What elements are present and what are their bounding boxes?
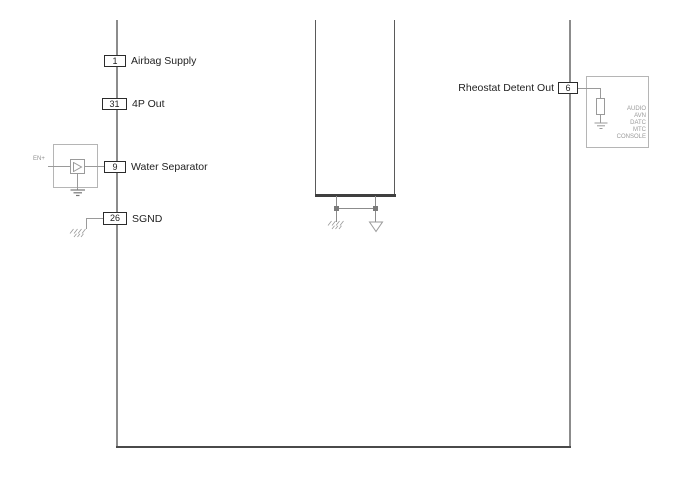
signal-ground-icon bbox=[327, 220, 347, 230]
module-name-list: AUDIO AVN DATC MTC CONSOLE bbox=[600, 106, 646, 141]
amplifier-ground-wire bbox=[77, 174, 78, 190]
module-input-wire bbox=[578, 88, 601, 89]
module-name-datc: DATC bbox=[600, 120, 646, 127]
sgnd-signal-ground-icon bbox=[69, 228, 89, 238]
junction-dot-left bbox=[334, 206, 339, 211]
connector-right-edge bbox=[394, 20, 395, 195]
amplifier-input-label: EN+ bbox=[33, 156, 45, 163]
connector-bottom-edge bbox=[315, 194, 396, 197]
pin-box-31: 31 bbox=[102, 98, 127, 110]
earth-ground-icon bbox=[70, 189, 86, 197]
pin-box-1: 1 bbox=[104, 55, 126, 67]
left-harness-wire bbox=[116, 20, 118, 447]
module-name-avn: AVN bbox=[600, 113, 646, 120]
connector-junction-wire bbox=[336, 208, 376, 209]
junction-dot-right bbox=[373, 206, 378, 211]
pin-label-airbag-supply: Airbag Supply bbox=[131, 55, 196, 67]
amplifier-triangle-icon bbox=[73, 162, 83, 172]
wiring-diagram-canvas: 1 Airbag Supply 31 4P Out EN+ 9 Water Se… bbox=[0, 0, 700, 477]
connector-left-edge bbox=[315, 20, 316, 195]
pin-label-4p-out: 4P Out bbox=[132, 98, 165, 110]
module-name-console: CONSOLE bbox=[600, 134, 646, 141]
pin-label-rheostat-detent-out: Rheostat Detent Out bbox=[430, 82, 554, 94]
resistor-top-wire bbox=[600, 88, 601, 98]
module-name-mtc: MTC bbox=[600, 127, 646, 134]
bottom-harness-wire bbox=[116, 446, 571, 448]
pin-box-6: 6 bbox=[558, 82, 578, 94]
sgnd-wire-horizontal bbox=[86, 218, 104, 219]
pin-box-9: 9 bbox=[104, 161, 126, 173]
pin-box-26: 26 bbox=[103, 212, 127, 225]
pin-label-water-separator: Water Separator bbox=[131, 161, 208, 173]
pin-label-sgnd: SGND bbox=[132, 213, 162, 225]
chassis-ground-icon bbox=[368, 221, 384, 233]
module-name-audio: AUDIO bbox=[600, 106, 646, 113]
